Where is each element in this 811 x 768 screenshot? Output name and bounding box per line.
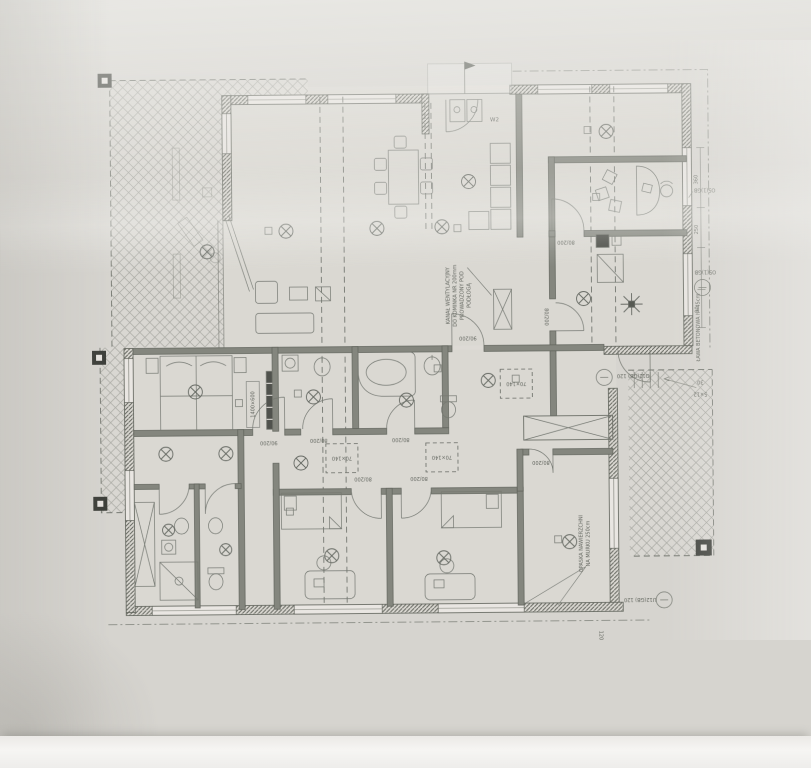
door-size-label: 80/200 [410, 475, 428, 481]
svg-text:PROWADZONY POD: PROWADZONY POD [459, 271, 465, 320]
svg-text:DO KOMINKA NR 200mm: DO KOMINKA NR 200mm [452, 264, 459, 326]
skylight-label: 70×140 [506, 380, 526, 386]
dim-label: 250 [694, 225, 700, 235]
porch-mark-label: W2 [490, 117, 499, 123]
dim-label: 5×12 [693, 390, 707, 396]
svg-text:NA MURKU 250cm: NA MURKU 250cm [585, 521, 591, 567]
floorplan-photo: 90/200 90/200 80/200 80/200 80/200 80/20… [0, 0, 811, 768]
svg-text:OPASKA NAWIERZCHNI: OPASKA NAWIERZCHNI [578, 515, 584, 572]
door-size-label: 80/200 [532, 459, 550, 465]
dim-label: 30 [697, 379, 703, 385]
opaska-note: OPASKA NAWIERZCHNI NA MURKU 250cm [578, 515, 591, 572]
window-label: U12(GB) 120 [624, 596, 656, 602]
svg-text:KANAŁ WENTYLACYJNY: KANAŁ WENTYLACYJNY [445, 266, 452, 324]
floorplan-drawing: 90/200 90/200 80/200 80/200 80/200 80/20… [0, 0, 811, 768]
window-label: O12(GB) 120 [617, 372, 650, 378]
door-size-label: 90/200 [260, 439, 278, 445]
door-size-label: 80/200 [543, 308, 549, 326]
dim-label: 120 [597, 631, 603, 641]
window-label: O5(1)GB [693, 186, 715, 192]
door-size-label: 80/200 [354, 475, 372, 481]
chandelier-star [621, 293, 643, 315]
dim-label: 360 [693, 175, 699, 185]
lawa-note: ŁAWA BETONOWA h=45cm [696, 293, 703, 362]
door-size-label: 90/200 [459, 335, 477, 341]
door-size-label: 80/200 [392, 436, 410, 442]
svg-text:PODŁOGĄ: PODŁOGĄ [466, 283, 472, 308]
skylight-label: 70×140 [332, 455, 352, 461]
door-size-label: 80/200 [310, 437, 328, 443]
skylight-label: 70×140 [432, 454, 452, 460]
window-label: O5(1)GB [694, 268, 716, 274]
radiator-label: 1400×600 [250, 391, 256, 418]
door-size-label: 80/200 [557, 239, 575, 245]
